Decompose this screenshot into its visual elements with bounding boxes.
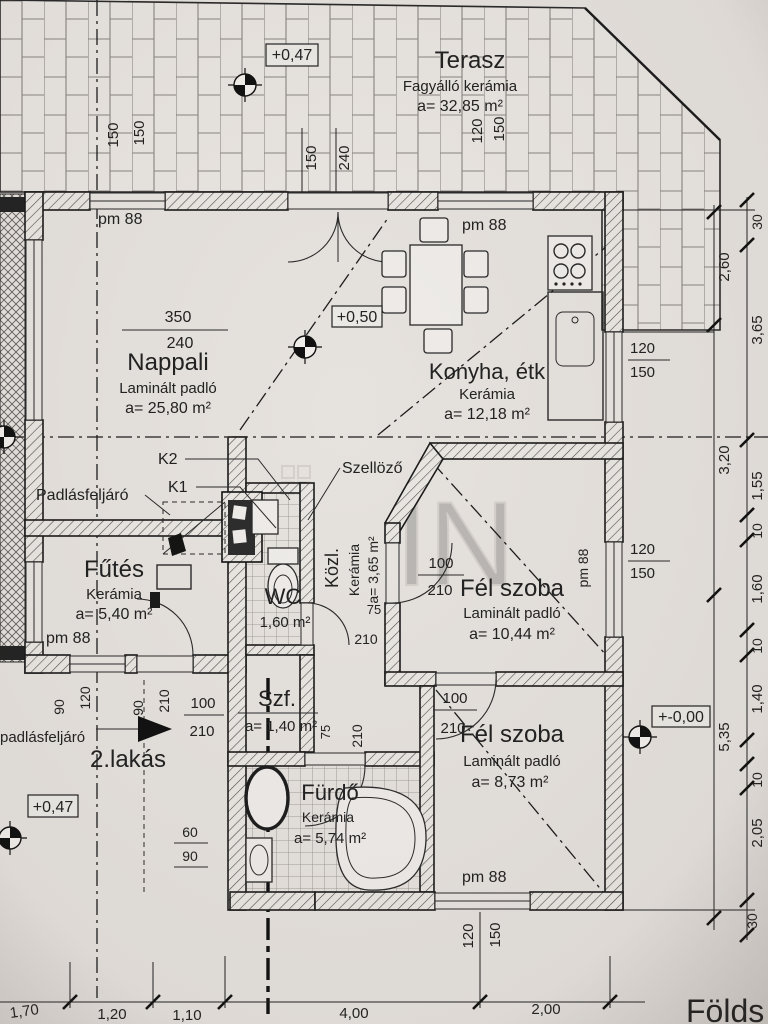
room-area-felszoba1: a= 10,44 m² (469, 626, 556, 643)
window-furdo-bottom (435, 893, 530, 909)
label-padlasfeljaro-upper: Padlásfeljáró (36, 487, 129, 504)
dim-left-120: 120 (77, 686, 93, 710)
kitchen-stove (548, 236, 592, 290)
window-futes-left (26, 562, 42, 642)
chain-outer-10a: 10 (749, 523, 765, 539)
room-finish-futes: Kerámia (86, 586, 143, 603)
level-ground: +-0,00 (658, 709, 704, 726)
dim-konyha-win-w: 120 (469, 118, 486, 143)
dim-szf-210: 210 (349, 724, 365, 748)
room-name-futes: Fűtés (84, 556, 144, 583)
parapet-felszoba1: pm 88 (575, 548, 591, 587)
dim-furdo-60: 60 (182, 824, 198, 840)
felszoba2-door-opening (436, 673, 496, 685)
room-name-felszoba2: Fél szoba (460, 721, 565, 748)
dim-right-win1-w: 120 (630, 340, 655, 357)
dim-szf-75: 75 (318, 725, 333, 739)
chain-outer-205: 2,05 (749, 818, 766, 847)
dim-left-90a: 90 (51, 699, 67, 715)
room-name-felszoba1: Fél szoba (460, 575, 565, 602)
chain-outer-30b: 30 (744, 913, 760, 929)
chain-inner-320: 3,20 (716, 445, 733, 474)
room-area-furdo: a= 5,74 m² (294, 830, 366, 847)
label-k1: K1 (168, 479, 188, 496)
chain-inner-535: 5,35 (716, 722, 733, 751)
dim-felszoba1-door-h: 210 (427, 582, 452, 599)
felszoba1-door-opening (386, 543, 399, 603)
dim-felszoba1-door-w: 100 (428, 555, 453, 572)
parapet-konyha: pm 88 (462, 217, 507, 234)
parapet-futes: pm 88 (46, 630, 91, 647)
dim-right-win2-h: 150 (630, 565, 655, 582)
room-finish-konyha: Kerámia (459, 386, 516, 403)
water-heater (246, 767, 288, 829)
room-finish-nappali: Laminált padló (119, 380, 217, 397)
dim-lakas2-door-w: 100 (190, 695, 215, 712)
room-name-kozl: Közl. (322, 548, 342, 588)
room-area-terasz: a= 32,85 m² (417, 98, 504, 115)
dining-table (410, 245, 462, 325)
chain-outer-10b: 10 (749, 638, 765, 654)
dim-right-win2-w: 120 (630, 541, 655, 558)
parapet-furdo: pm 88 (462, 869, 507, 886)
room-area-nappali: a= 25,80 m² (125, 400, 212, 417)
dim-left-90b: 90 (130, 700, 146, 716)
parapet-nappali: pm 88 (98, 211, 143, 228)
dim-furdo-90: 90 (182, 848, 198, 864)
floor-plan-scan: IN (0, 0, 768, 1024)
chair (424, 329, 452, 353)
chair (420, 218, 448, 242)
room-area-wc: 1,60 m² (260, 614, 311, 631)
level-kitchen: +0,50 (337, 309, 378, 326)
chain-outer-155: 1,55 (749, 471, 766, 500)
label-k2: K2 (158, 451, 178, 468)
chair (382, 251, 406, 277)
furdo-door-opening (305, 753, 365, 765)
dim-terrace-door-h: 240 (336, 145, 353, 170)
dim-left-210: 210 (156, 689, 172, 713)
room-finish-felszoba2: Laminált padló (463, 753, 561, 770)
chain-outer-10c: 10 (749, 772, 765, 788)
room-area-futes: a= 5,40 m² (76, 606, 154, 623)
window-nappali-top (90, 193, 165, 209)
floor-plan: IN (0, 0, 768, 1024)
chain-outer-365: 3,65 (749, 315, 766, 344)
dim-lakas2-door-h: 210 (189, 723, 214, 740)
room-name-nappali: Nappali (127, 349, 208, 376)
room-name-terasz: Terasz (435, 47, 506, 74)
room-finish-kozl: Kerámia (346, 544, 362, 596)
chain-bottom-120: 1,20 (97, 1006, 126, 1023)
dim-topleft-150a: 150 (105, 122, 122, 147)
chain-outer-160: 1,60 (749, 574, 766, 603)
chair (382, 287, 406, 313)
label-szellozo: Szellöző (342, 460, 403, 477)
dim-terrace-door-w: 150 (303, 145, 320, 170)
toilet-tank (268, 548, 298, 564)
dim-topleft-150b: 150 (131, 120, 148, 145)
room-area-konyha: a= 12,18 m² (444, 406, 531, 423)
window-bottom-left (70, 656, 125, 672)
room-area-felszoba2: a= 8,73 m² (472, 774, 550, 791)
window-right-konyha (606, 332, 622, 422)
chain-outer-140: 1,40 (749, 684, 766, 713)
level-apartment2: +0,47 (33, 799, 74, 816)
room-name-lakas2: 2.lakás (90, 746, 166, 773)
room-name-furdo: Fürdő (301, 780, 358, 805)
chain-outer-30a: 30 (749, 214, 765, 230)
window-konyha-top (438, 193, 533, 209)
dim-felszoba2-door-w: 100 (442, 690, 467, 707)
room-finish-furdo: Kerámia (302, 809, 354, 825)
room-area-szf: a= 1,40 m² (245, 718, 317, 735)
terrace-door-opening (288, 193, 388, 209)
level-terrace: +0,47 (272, 47, 313, 64)
window-nappali-left (26, 240, 42, 420)
room-area-kozl: a= 3,65 m² (365, 536, 381, 604)
futes-door-opening (137, 656, 193, 672)
chain-bottom-110: 1,10 (172, 1007, 201, 1024)
chain-inner-260: 2,60 (716, 252, 733, 281)
dim-konyha-win-h: 150 (491, 116, 508, 141)
room-finish-felszoba1: Laminált padló (463, 605, 561, 622)
chain-bottom-200: 2,00 (531, 1001, 560, 1018)
dim-kozl-75: 75 (367, 602, 381, 617)
room-finish-terasz: Fagyálló kerámia (403, 78, 518, 95)
dim-right-win1-h: 150 (630, 364, 655, 381)
floor-name: Földs (686, 993, 764, 1024)
room-name-konyha: Konyha, étk (429, 359, 546, 384)
room-name-szf: Szf. (258, 686, 296, 711)
room-name-wc: WC (265, 584, 302, 609)
label-padlasfeljaro-lower: padlásfeljáró (0, 729, 85, 746)
dim-bottom-win-w: 120 (460, 923, 477, 948)
chain-bottom-400: 4,00 (339, 1005, 368, 1022)
chair (464, 251, 488, 277)
window-right-felszoba1 (606, 542, 622, 637)
dim-nappali-win-w: 350 (165, 309, 192, 326)
dim-kozl-210: 210 (354, 631, 378, 647)
chair (464, 287, 488, 313)
dim-bottom-win-h: 150 (487, 922, 504, 947)
